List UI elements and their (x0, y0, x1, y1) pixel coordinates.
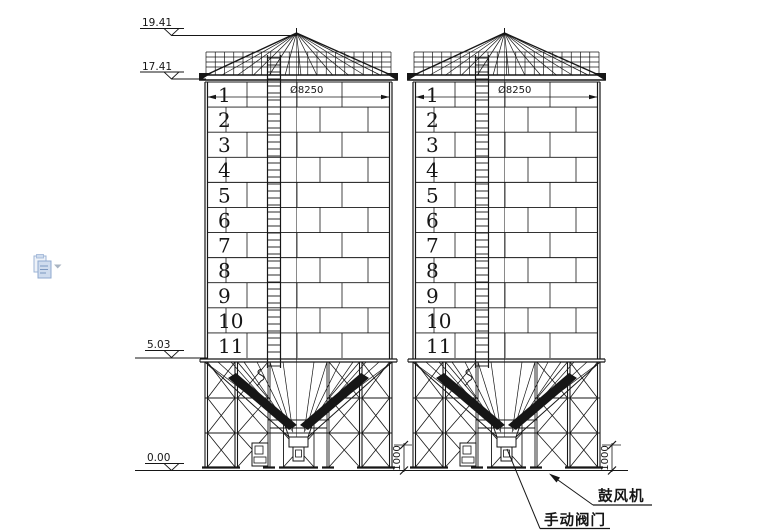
elevation-marker-eave: 17.41 (140, 61, 206, 79)
blower-label: 鼓风机 (598, 487, 645, 505)
silo-left (199, 28, 398, 468)
elevation-value: 0.00 (147, 452, 170, 464)
dim-value: 1000 (600, 445, 611, 470)
dim-1000-right-silo: 1000 (600, 441, 621, 475)
leader-arrow-icon (549, 474, 560, 483)
silo-right (407, 28, 606, 468)
dim-value: 1000 (392, 445, 403, 470)
elevation-triangle-icon (164, 29, 179, 36)
manual-valve-callout: 手动阀门 (507, 449, 610, 529)
manual-valve-label: 手动阀门 (544, 511, 606, 529)
elevation-triangle-icon (164, 72, 179, 79)
clipboard-clip-icon (37, 255, 44, 259)
elevation-triangle-icon (164, 351, 179, 358)
elevation-marker-hopper-top: 5.03 (135, 339, 207, 358)
dim-1000-left-silo: 1000 (392, 441, 412, 475)
elevation-value: 17.41 (142, 61, 172, 73)
silo-elevation-drawing: Ø8250 1 2 3 4 5 6 7 8 9 10 11 19.41 (0, 0, 769, 530)
elevation-value: 5.03 (147, 339, 170, 351)
chevron-down-icon[interactable] (54, 265, 62, 269)
blower-callout: 鼓风机 (549, 474, 652, 506)
drawing-canvas: Ø8250 1 2 3 4 5 6 7 8 9 10 11 19.41 (0, 0, 769, 530)
elevation-value: 19.41 (142, 17, 172, 29)
elevation-marker-roof-apex: 19.41 (140, 17, 297, 36)
paste-options-button[interactable] (34, 255, 62, 279)
callouts: 鼓风机 手动阀门 (507, 449, 652, 529)
elevation-triangle-icon (164, 464, 179, 471)
